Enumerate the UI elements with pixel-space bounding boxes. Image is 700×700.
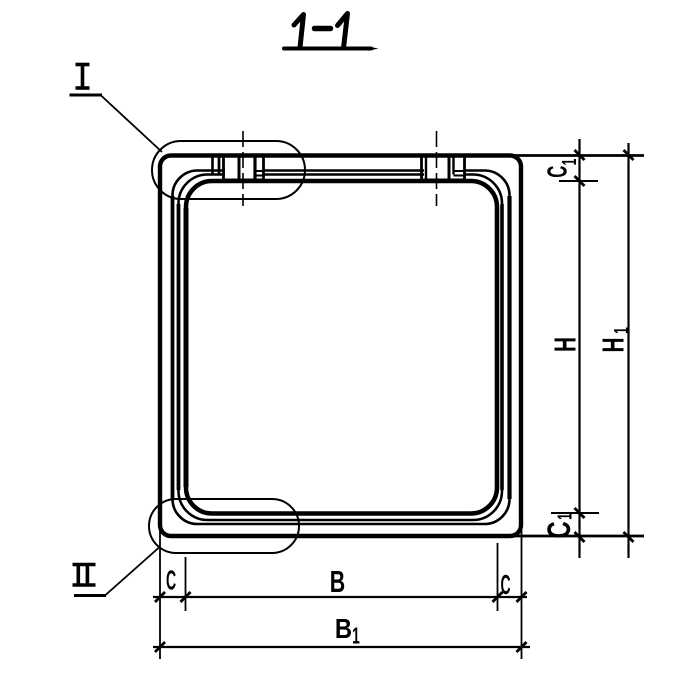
svg-text:H: H — [595, 337, 630, 352]
svg-text:1: 1 — [611, 327, 633, 334]
svg-text:B: B — [330, 564, 345, 599]
svg-text:C: C — [500, 569, 510, 601]
svg-text:1: 1 — [555, 513, 577, 520]
svg-text:C: C — [542, 521, 577, 538]
svg-text:C: C — [166, 564, 176, 596]
svg-text:1: 1 — [559, 159, 581, 166]
svg-text:B: B — [335, 612, 352, 644]
svg-text:C: C — [541, 165, 573, 177]
svg-text:H: H — [547, 337, 582, 352]
svg-text:1: 1 — [352, 624, 360, 649]
